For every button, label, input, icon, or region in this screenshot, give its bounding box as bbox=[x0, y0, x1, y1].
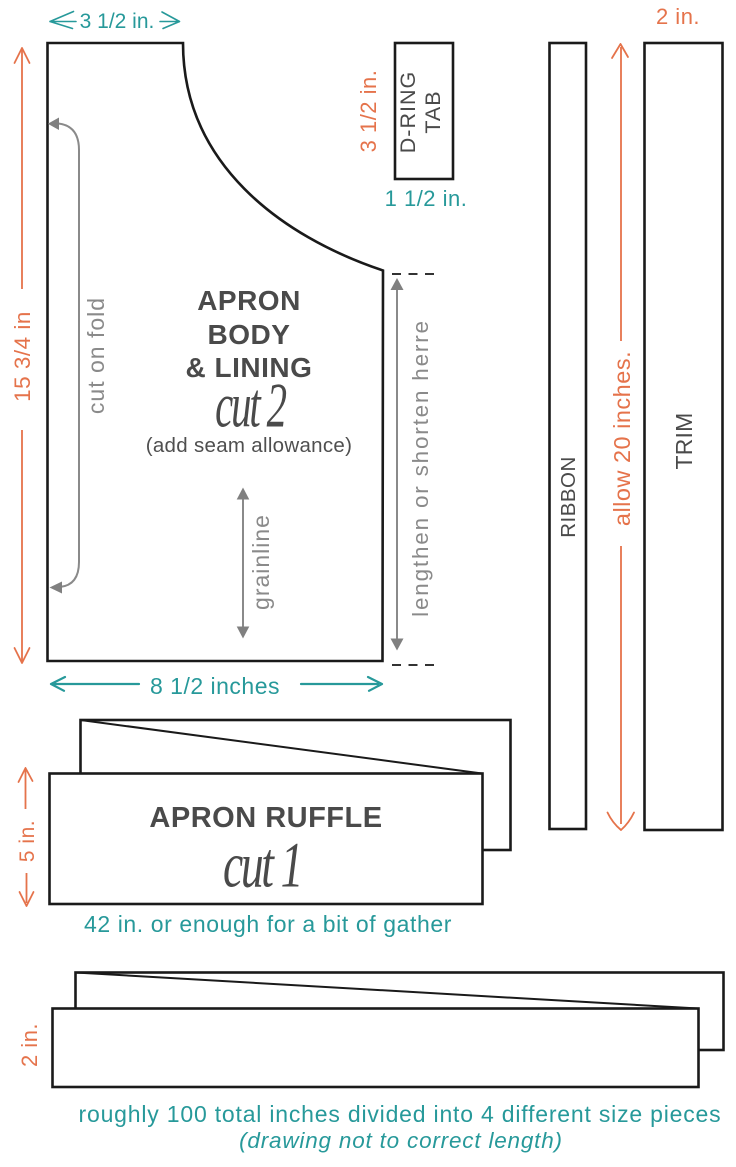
svg-text:2 in.: 2 in. bbox=[17, 1023, 42, 1067]
svg-text:TAB: TAB bbox=[421, 90, 445, 133]
svg-text:1 1/2 in.: 1 1/2 in. bbox=[385, 186, 468, 211]
svg-text:2 in.: 2 in. bbox=[656, 4, 700, 29]
svg-text:cut 1: cut 1 bbox=[223, 830, 301, 902]
svg-text:42 in. or enough for a bit of: 42 in. or enough for a bit of gather bbox=[84, 911, 452, 937]
svg-text:8 1/2 inches: 8 1/2 inches bbox=[150, 673, 280, 699]
svg-text:15 3/4 in: 15 3/4 in bbox=[10, 311, 35, 402]
svg-text:BODY: BODY bbox=[208, 319, 291, 350]
svg-text:(add seam allowance): (add seam allowance) bbox=[146, 434, 353, 457]
svg-text:APRON: APRON bbox=[197, 285, 301, 316]
svg-text:cut 2: cut 2 bbox=[215, 371, 286, 441]
svg-text:RIBBON: RIBBON bbox=[557, 456, 580, 538]
svg-text:roughly 100 total inches divid: roughly 100 total inches divided into 4 … bbox=[79, 1101, 722, 1127]
svg-text:cut on fold: cut on fold bbox=[83, 297, 109, 414]
svg-text:3 1/2 in.: 3 1/2 in. bbox=[80, 10, 155, 33]
svg-text:(drawing not to correct length: (drawing not to correct length) bbox=[239, 1128, 563, 1153]
svg-text:grainline: grainline bbox=[248, 514, 274, 610]
svg-text:allow 20 inches.: allow 20 inches. bbox=[609, 351, 635, 526]
svg-text:lengthen or shorten herre: lengthen or shorten herre bbox=[408, 319, 433, 617]
svg-text:D-RING: D-RING bbox=[396, 71, 420, 153]
svg-text:5 in.: 5 in. bbox=[16, 820, 39, 862]
svg-text:3 1/2 in.: 3 1/2 in. bbox=[356, 70, 381, 153]
svg-text:TRIM: TRIM bbox=[671, 412, 697, 469]
